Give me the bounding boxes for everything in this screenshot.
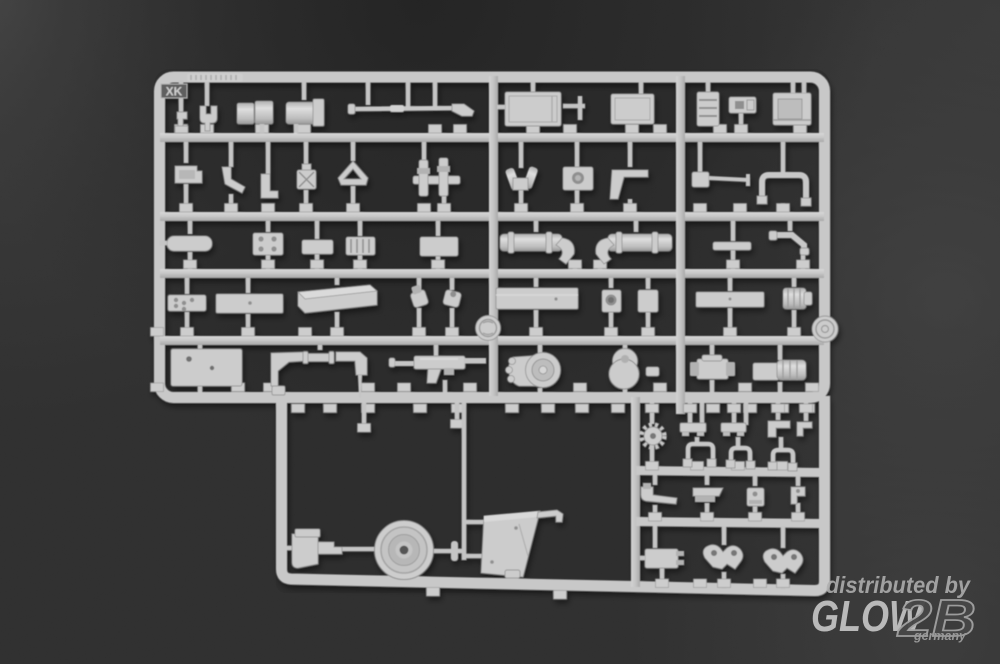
svg-text:germany: germany	[913, 629, 967, 643]
svg-text:XK: XK	[166, 85, 183, 99]
